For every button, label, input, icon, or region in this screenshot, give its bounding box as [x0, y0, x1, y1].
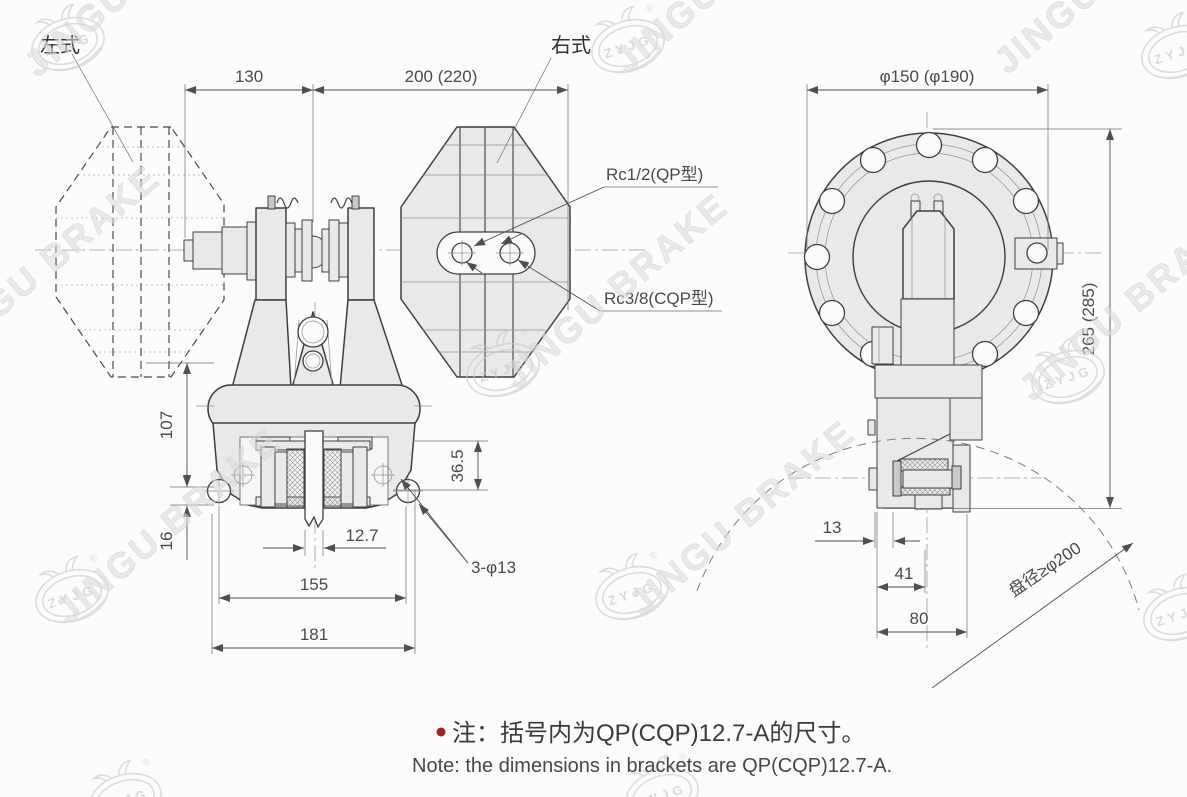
- dim-200-text: 200 (220): [405, 67, 478, 86]
- dim-12-7-text: 12.7: [345, 526, 378, 545]
- disc-diameter-callout: 盘径≥φ200: [932, 538, 1133, 688]
- pivot-circle-upper: [298, 317, 328, 347]
- dim-155-text: 155: [300, 575, 328, 594]
- brake-pad-left: [287, 449, 304, 508]
- note-text-zh: 注：括号内为QP(CQP)12.7-A的尺寸。: [452, 720, 865, 747]
- right-type-label: 右式: [551, 34, 591, 57]
- guide-pin: [903, 470, 952, 488]
- dim-107-text: 107: [157, 411, 176, 439]
- actuator-shaft-assembly: [184, 196, 374, 300]
- caliper-linkage: [232, 300, 403, 388]
- spring-left: [277, 198, 298, 208]
- technical-drawing-canvas: JINGU BRAKE ZYJG ®: [0, 0, 1187, 797]
- boss-notch: [872, 327, 893, 364]
- note-block: 注：括号内为QP(CQP)12.7-A的尺寸。 Note: the dimens…: [412, 720, 892, 777]
- brake-pad-right: [324, 449, 341, 508]
- adjuster-pin-left: [268, 196, 275, 209]
- note-text-en: Note: the dimensions in brackets are QP(…: [412, 755, 892, 777]
- brake-disc: [305, 431, 323, 527]
- dim-41-text: 41: [895, 564, 914, 583]
- dim-13-text: 13: [823, 518, 842, 537]
- port-top-label: Rc1/2(QP型): [606, 165, 703, 184]
- dim-130-text: 130: [235, 67, 263, 86]
- dim-130: 130: [185, 67, 313, 238]
- dim-181-text: 181: [300, 625, 328, 644]
- dim-41: 41: [877, 550, 925, 593]
- caliper-arm-right-lower: [340, 300, 403, 388]
- watermark-layer: [0, 0, 1187, 797]
- note-bullet-icon: [437, 728, 446, 737]
- dim-36-5-text: 36.5: [448, 449, 467, 482]
- dim-80: 80: [877, 512, 967, 638]
- drawing-page: JINGU BRAKE ZYJG ®: [0, 0, 1187, 797]
- caliper-arm-left-upper: [256, 208, 286, 300]
- dim-13: 13: [815, 512, 920, 548]
- mount-holes-label: 3-φ13: [471, 558, 516, 577]
- backing-plate-right: [341, 452, 353, 504]
- boss-stem: [901, 299, 954, 365]
- dim-80-text: 80: [910, 609, 929, 628]
- adjuster-pin-right: [352, 196, 359, 209]
- spring-right: [331, 198, 352, 208]
- side-tab-hole: [1027, 243, 1047, 263]
- caliper-arm-left-lower: [232, 300, 291, 388]
- disc-diameter-label: 盘径≥φ200: [1005, 538, 1084, 600]
- dim-12-7: 12.7: [263, 526, 386, 556]
- caliper-arm-right-upper: [348, 208, 374, 300]
- pad-section-top: [900, 459, 948, 471]
- boss-pentagon: [903, 211, 954, 299]
- dim-flange-diameter-text: φ150 (φ190): [880, 67, 975, 86]
- bottom-block: [915, 495, 942, 509]
